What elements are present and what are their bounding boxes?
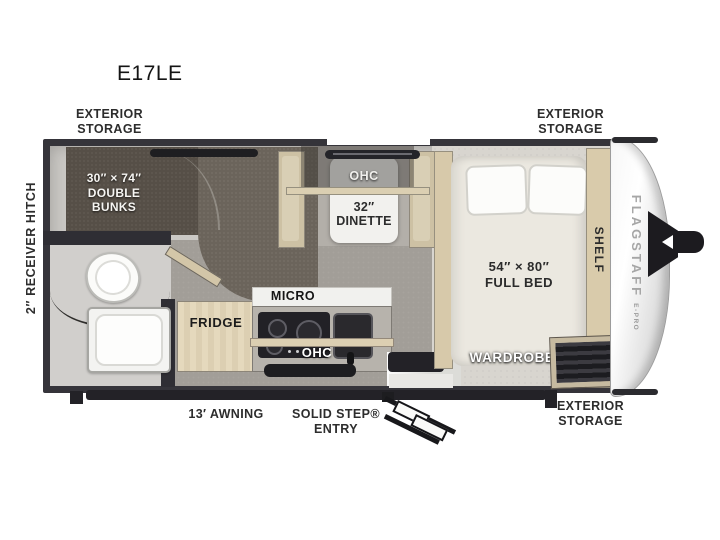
dinette-ohc-label: OHC xyxy=(344,169,384,183)
bathroom-wall xyxy=(43,231,171,245)
model-title: E17LE xyxy=(117,62,183,86)
hitch-coupler xyxy=(674,231,704,253)
lower-drawer xyxy=(264,364,356,377)
pillow-right xyxy=(527,164,588,216)
fridge-label: FRIDGE xyxy=(178,315,254,330)
brand-series: E-PRO xyxy=(632,303,639,331)
exterior-storage-label-bottom-right: EXTERIOR STORAGE xyxy=(538,399,643,429)
cap-trim-bottom xyxy=(612,389,658,395)
receiver-hitch-label: 2″ RECEIVER HITCH xyxy=(24,148,38,348)
bathtub-fixture xyxy=(87,307,171,373)
dinette-label: 32″ DINETTE xyxy=(330,200,398,229)
burner-small-top xyxy=(268,319,287,338)
cap-trim-top xyxy=(612,137,658,143)
top-wall-window-gap xyxy=(327,139,430,145)
double-bunks-label: 30″ × 74″ DOUBLE BUNKS xyxy=(62,171,166,215)
pillow-left xyxy=(465,164,528,216)
awning-label: 13′ AWNING xyxy=(156,407,296,422)
kitchen-ohc-label: OHC xyxy=(287,345,347,360)
brand-logo: FLAGSTAFFE-PRO xyxy=(628,178,644,348)
solid-step-entry-label: SOLID STEP® ENTRY xyxy=(286,407,386,437)
exterior-storage-label-top-right: EXTERIOR STORAGE xyxy=(518,107,623,137)
entry-threshold xyxy=(389,374,453,388)
shelf-label: SHELF xyxy=(592,190,606,310)
dinette-window xyxy=(325,150,420,159)
brand-name: FLAGSTAFF xyxy=(629,195,644,298)
floorplan-canvas: E17LE EXTERIOR STORAGE EXTERIOR STORAGE … xyxy=(0,0,720,540)
awning-bracket-left xyxy=(70,391,83,404)
exterior-storage-label-top-left: EXTERIOR STORAGE xyxy=(57,107,162,137)
bunk-window xyxy=(150,149,258,157)
full-bed-label: 54″ × 80″ FULL BED xyxy=(451,259,587,292)
awning-rail xyxy=(86,390,546,400)
dinette-slide-edge-bar xyxy=(286,187,430,195)
micro-label: MICRO xyxy=(258,289,328,303)
bathtub-basin xyxy=(95,314,163,366)
bench-cushion xyxy=(413,156,430,241)
fridge-cabinet: FRIDGE xyxy=(177,301,255,372)
bench-cushion xyxy=(282,156,299,241)
